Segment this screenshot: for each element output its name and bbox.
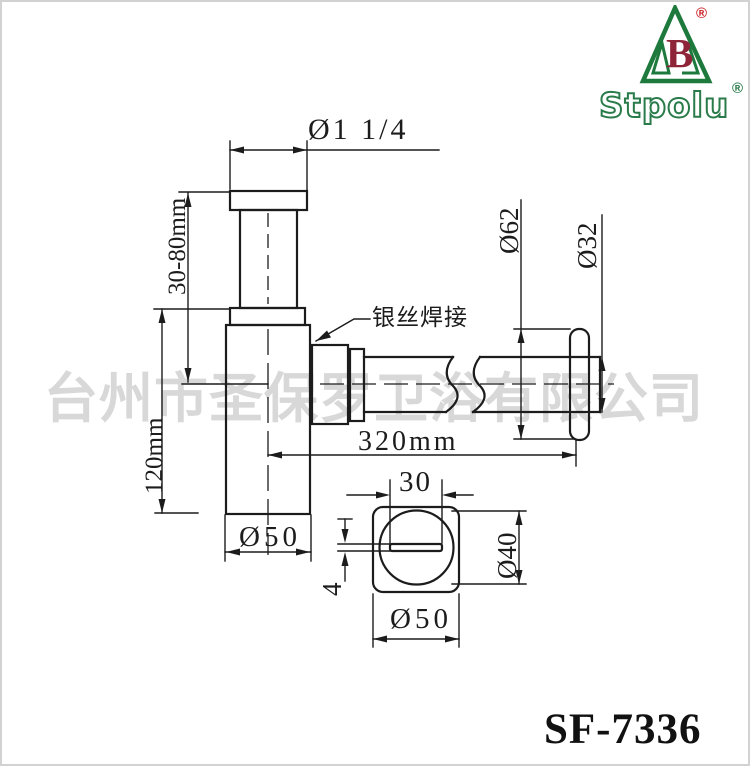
dim-label-slot-width: 4: [319, 583, 346, 597]
registered-trademark-icon: ®: [732, 80, 743, 97]
dim-label-body-diameter: Ø50: [239, 523, 301, 552]
dim-label-body-height: 120mm: [142, 418, 167, 494]
dim-label-adjustable-height: 30-80mm: [165, 198, 190, 295]
centerlines: [268, 213, 614, 555]
weld-note-label: 银丝焊接: [372, 306, 468, 329]
model-number: SF-7336: [544, 705, 702, 754]
dimension-lines: [154, 141, 602, 647]
dim-label-flange-diameter: Ø62: [496, 208, 523, 255]
technical-drawing-page: 台州市圣保罗卫浴有限公司: [0, 0, 750, 766]
dim-label-pipe-diameter: Ø32: [574, 223, 601, 270]
brand-logo-letter: B: [666, 29, 693, 77]
brand-name: Stpolu: [599, 86, 729, 126]
dim-label-base-diameter: Ø50: [390, 605, 452, 634]
registered-trademark-icon: ®: [696, 5, 707, 22]
dim-label-top-diameter: Ø1 1/4: [308, 115, 409, 145]
dim-label-pipe-length: 320mm: [358, 428, 459, 456]
dim-label-circle-diameter: Ø40: [494, 533, 521, 580]
dim-label-slot-length: 30: [399, 468, 432, 497]
